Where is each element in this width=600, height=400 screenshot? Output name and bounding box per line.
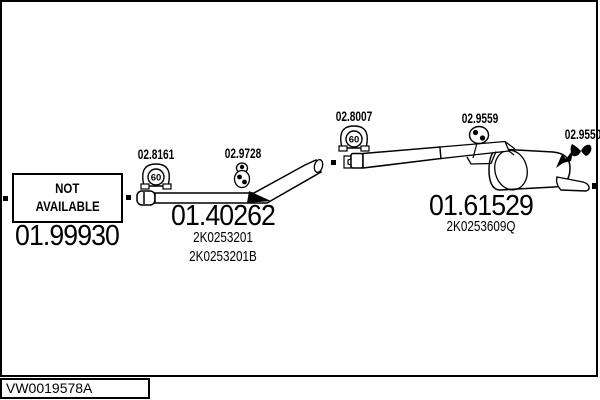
mid-pipe-drawing [344, 142, 515, 169]
hanger-icon-1 [235, 163, 250, 188]
clamp-icon-1: 60 [141, 164, 171, 189]
clamp-2-label: 02.8007 [320, 109, 388, 124]
drawing-reference-box: VW0019578A [0, 378, 150, 399]
left-edge-marker [3, 196, 8, 201]
hanger-3-label: 02.9550 [549, 127, 600, 142]
drawing-reference: VW0019578A [6, 380, 92, 396]
clamp-1-diameter: 60 [151, 173, 162, 184]
right-edge-marker [592, 183, 598, 189]
tailpipe-drawing [557, 177, 589, 191]
oem-ref-middle-1: 2K0253201 [168, 229, 277, 246]
oem-ref-middle-2: 2K0253201B [168, 248, 277, 265]
clamp-icon-2: 60 [339, 126, 369, 151]
exhaust-diagram-page: 60 60 [0, 0, 600, 400]
part-number-left: 01.99930 [0, 220, 150, 253]
hanger-icon-3 [571, 144, 592, 156]
clamp-1-label: 02.8161 [122, 147, 190, 162]
joint-marker-1 [126, 195, 131, 200]
oem-ref-right-1: 2K0253609Q [426, 218, 535, 235]
not-available-line2: AVAILABLE [36, 198, 100, 216]
joint-marker-2 [331, 160, 336, 165]
hanger-2-label: 02.9559 [446, 111, 514, 126]
not-available-line1: NOT [55, 180, 79, 198]
clamp-2-diameter: 60 [349, 135, 360, 146]
not-available-box: NOT AVAILABLE [12, 173, 123, 223]
hanger-1-label: 02.9728 [209, 146, 277, 161]
